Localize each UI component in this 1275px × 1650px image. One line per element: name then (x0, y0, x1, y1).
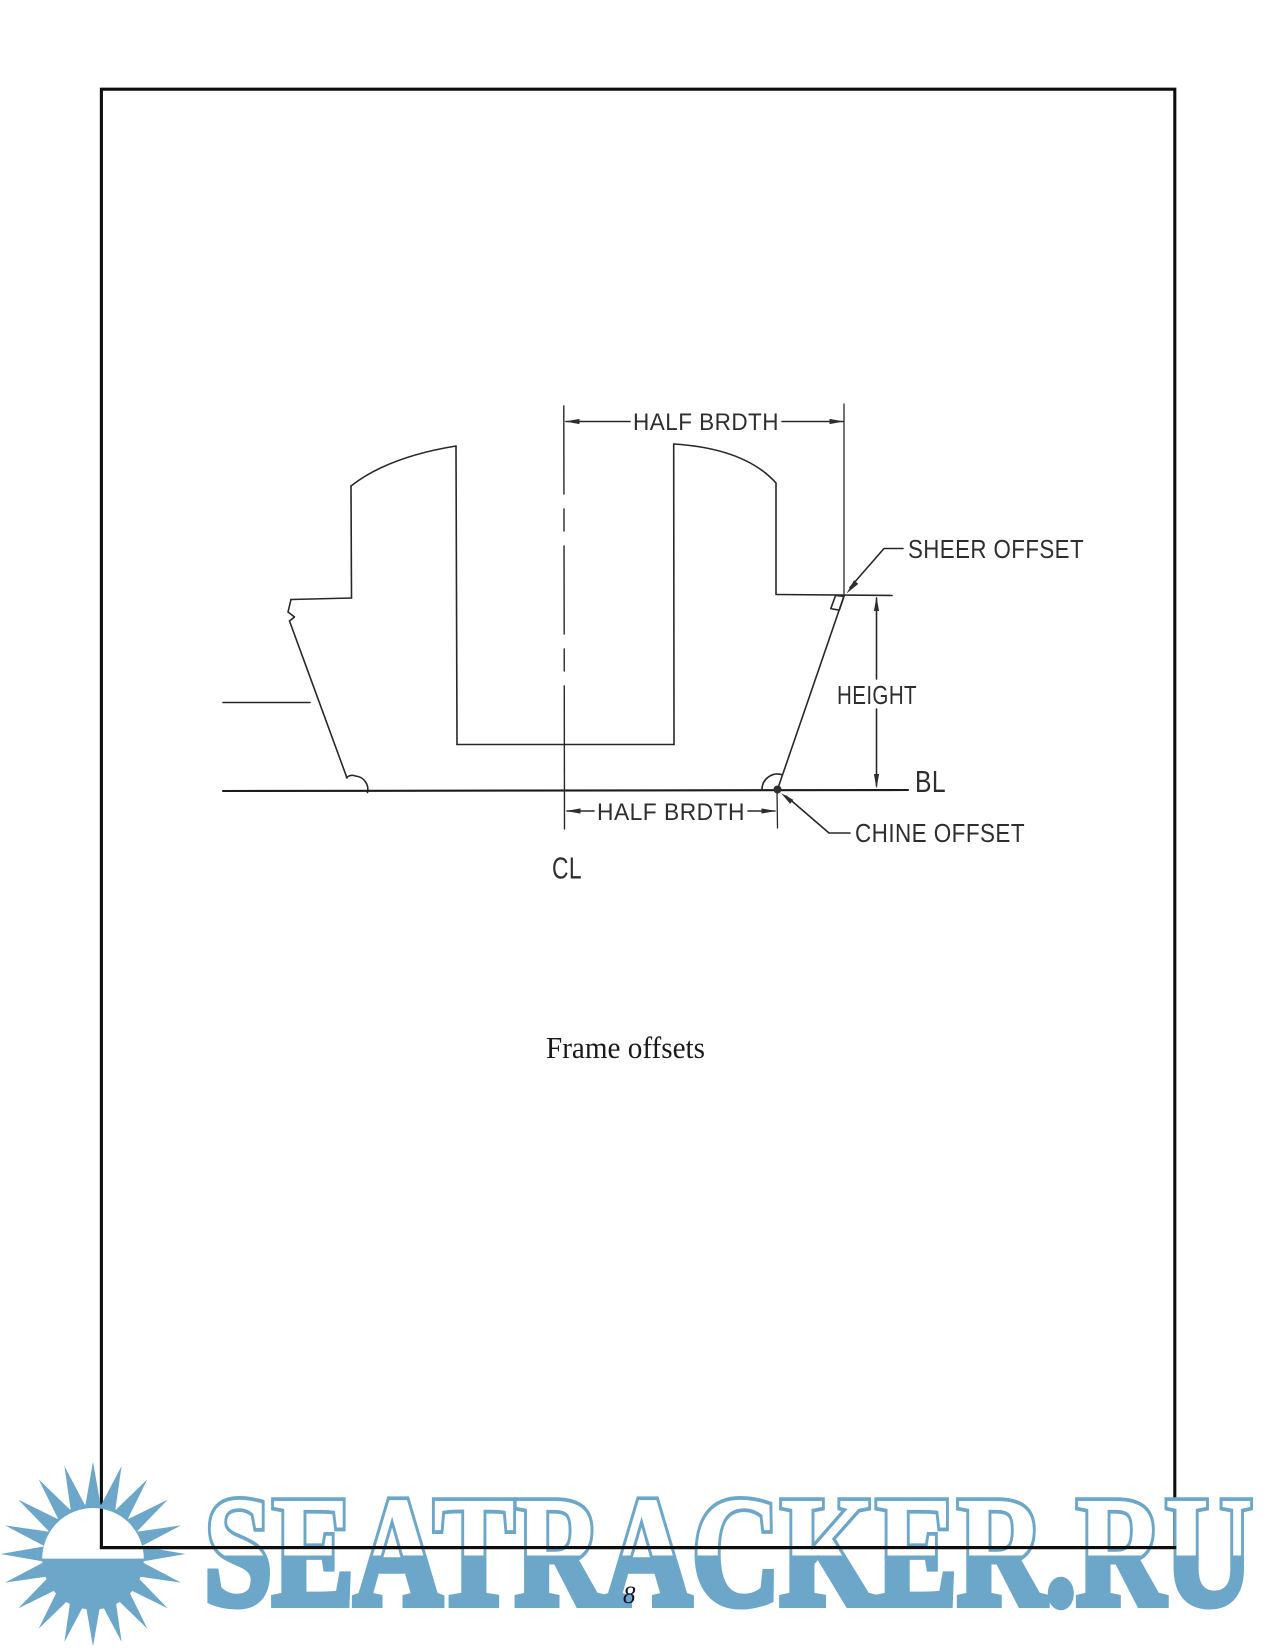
svg-text:BL: BL (915, 764, 946, 799)
svg-text:Frame offsets: Frame offsets (546, 1030, 705, 1065)
svg-text:HEIGHT: HEIGHT (837, 680, 917, 710)
svg-text:HALF BRDTH: HALF BRDTH (633, 409, 779, 436)
svg-text:CL: CL (552, 851, 582, 886)
svg-text:SHEER OFFSET: SHEER OFFSET (908, 534, 1084, 564)
svg-text:HALF BRDTH: HALF BRDTH (597, 799, 745, 826)
svg-text:CHINE OFFSET: CHINE OFFSET (855, 818, 1025, 848)
svg-text:8: 8 (623, 1582, 636, 1609)
